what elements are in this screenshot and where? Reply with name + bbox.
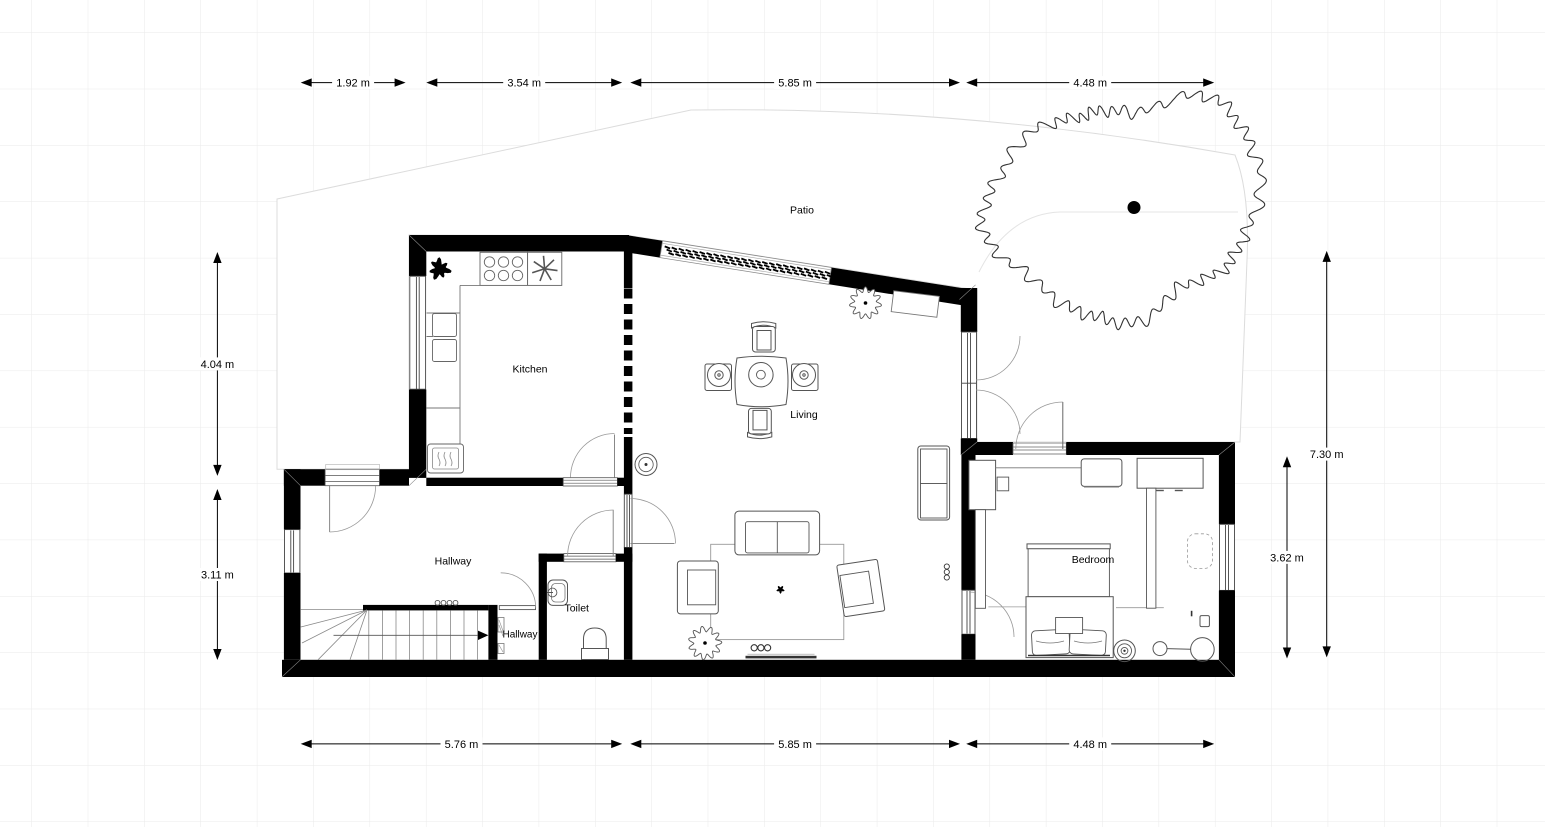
svg-text:Hallway: Hallway: [502, 630, 537, 641]
svg-text:Patio: Patio: [790, 205, 814, 217]
svg-text:5.76 m: 5.76 m: [445, 739, 479, 751]
svg-text:5.85 m: 5.85 m: [778, 739, 812, 751]
svg-text:1.92 m: 1.92 m: [336, 78, 370, 90]
svg-text:4.04 m: 4.04 m: [201, 359, 235, 371]
svg-text:Kitchen: Kitchen: [512, 364, 547, 376]
svg-text:3.11 m: 3.11 m: [201, 570, 234, 582]
svg-text:5.85 m: 5.85 m: [778, 78, 812, 90]
svg-text:Toilet: Toilet: [564, 603, 589, 615]
svg-text:Hallway: Hallway: [435, 556, 473, 568]
svg-text:4.48 m: 4.48 m: [1073, 78, 1107, 90]
svg-text:7.30 m: 7.30 m: [1310, 449, 1344, 461]
svg-text:Living: Living: [790, 409, 818, 421]
svg-text:4.48 m: 4.48 m: [1073, 739, 1107, 751]
svg-text:Bedroom: Bedroom: [1072, 554, 1115, 566]
svg-text:3.54 m: 3.54 m: [507, 78, 541, 90]
svg-text:3.62 m: 3.62 m: [1270, 552, 1304, 564]
